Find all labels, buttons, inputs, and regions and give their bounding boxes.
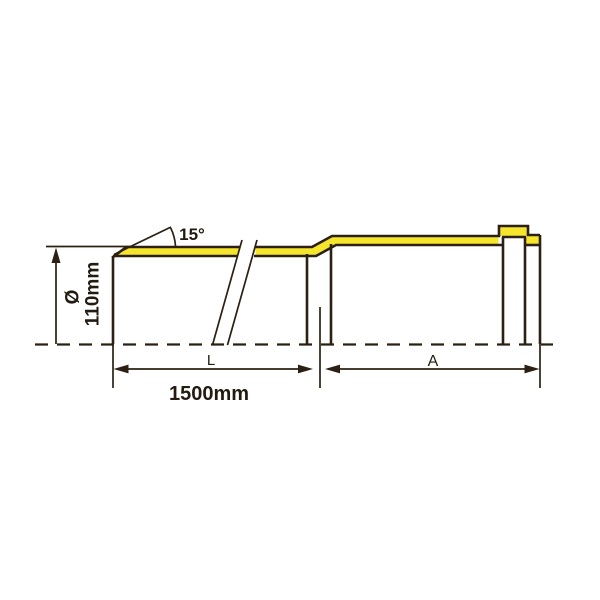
arrow-up-icon — [52, 248, 61, 264]
arrow-right-icon — [525, 365, 540, 374]
socket-depth-symbol-label: A — [428, 353, 439, 370]
arrow-left-icon — [325, 365, 340, 374]
arrow-left-icon — [114, 365, 129, 374]
length-dimension — [113, 307, 320, 388]
angle-arc — [171, 228, 176, 246]
pipe-diagram-canvas: 15° Ø 110mm L 1500mm A — [0, 0, 600, 600]
pipe-technical-drawing: 15° Ø 110mm L 1500mm A — [0, 0, 600, 600]
diameter-dimension — [52, 248, 61, 345]
chamfer-angle-label: 15° — [179, 225, 205, 244]
diameter-value-label: 110mm — [83, 262, 104, 326]
arrow-right-icon — [298, 365, 313, 374]
diameter-symbol-label: Ø — [63, 290, 84, 305]
length-value-label: 1500mm — [169, 383, 249, 405]
length-symbol-label: L — [207, 352, 215, 369]
